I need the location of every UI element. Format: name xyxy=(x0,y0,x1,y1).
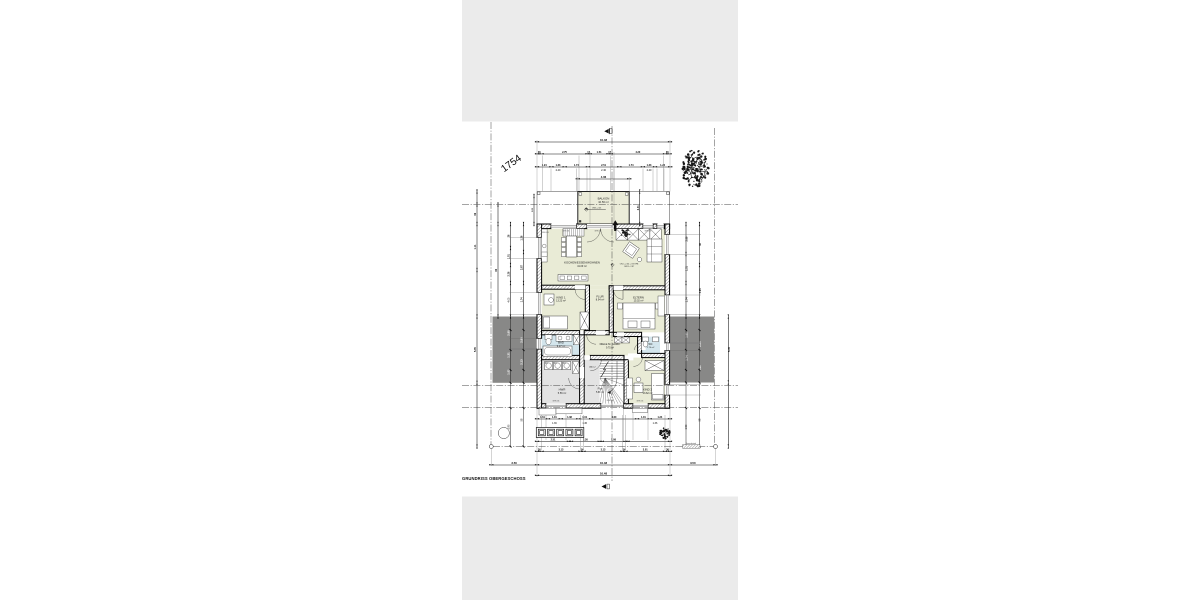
svg-text:BRH 0.86: BRH 0.86 xyxy=(637,401,644,403)
svg-text:15.02 m²: 15.02 m² xyxy=(634,300,644,303)
svg-text:3.01: 3.01 xyxy=(643,449,648,452)
svg-text:8.94 m²: 8.94 m² xyxy=(596,299,605,302)
svg-text:1.24: 1.24 xyxy=(660,164,665,167)
svg-text:5.35: 5.35 xyxy=(728,346,731,351)
svg-text:1.51: 1.51 xyxy=(597,151,602,154)
svg-text:1.01: 1.01 xyxy=(552,416,557,419)
svg-text:1.70 m²: 1.70 m² xyxy=(647,346,655,349)
svg-text:Abst.2: Abst.2 xyxy=(589,366,596,369)
svg-text:1.74: 1.74 xyxy=(574,164,579,167)
svg-text:OKB +2.46: OKB +2.46 xyxy=(592,207,601,209)
svg-text:BRH 0.86: BRH 0.86 xyxy=(607,400,614,402)
svg-text:1.11: 1.11 xyxy=(474,244,477,249)
svg-text:BRH 0.86: BRH 0.86 xyxy=(563,231,570,233)
svg-text:2.40: 2.40 xyxy=(601,169,606,172)
svg-text:1.33: 1.33 xyxy=(647,164,652,167)
svg-text:BRH 0.86: BRH 0.86 xyxy=(553,401,560,403)
svg-text:1.36: 1.36 xyxy=(582,422,587,425)
svg-text:2.36: 2.36 xyxy=(508,271,511,276)
svg-text:2.26: 2.26 xyxy=(583,439,588,442)
svg-text:1.74: 1.74 xyxy=(629,164,634,167)
svg-text:5.35: 5.35 xyxy=(474,347,477,352)
svg-text:2.40: 2.40 xyxy=(647,169,652,172)
svg-text:BRH 0.86: BRH 0.86 xyxy=(542,232,549,234)
svg-text:5.56 m²: 5.56 m² xyxy=(558,392,567,395)
svg-text:1.90: 1.90 xyxy=(508,424,511,429)
svg-text:1.61: 1.61 xyxy=(685,332,689,338)
svg-text:9.75 m²: 9.75 m² xyxy=(606,346,614,349)
svg-text:10.56 m²: 10.56 m² xyxy=(598,200,609,204)
svg-text:2.13: 2.13 xyxy=(520,359,524,365)
svg-text:2.51: 2.51 xyxy=(551,439,556,442)
svg-text:4.20: 4.20 xyxy=(635,151,640,154)
svg-text:2.40: 2.40 xyxy=(556,169,561,172)
svg-text:13.23 m²: 13.23 m² xyxy=(556,300,566,303)
svg-text:1.24: 1.24 xyxy=(657,416,662,419)
svg-text:1.36: 1.36 xyxy=(552,422,557,425)
svg-text:1.31: 1.31 xyxy=(686,265,689,270)
svg-text:41.09 m²: 41.09 m² xyxy=(577,265,587,268)
svg-text:3.13: 3.13 xyxy=(559,449,564,452)
svg-text:3.50: 3.50 xyxy=(511,461,517,465)
svg-text:10.48: 10.48 xyxy=(600,472,607,476)
svg-text:1.74: 1.74 xyxy=(686,297,689,302)
svg-text:1.74: 1.74 xyxy=(685,355,689,361)
svg-text:KOCHEN/ESSEN/WOHNEN: KOCHEN/ESSEN/WOHNEN xyxy=(564,261,600,265)
svg-text:OKU +2.60 = OK RFB: OKU +2.60 = OK RFB xyxy=(620,263,639,265)
svg-text:10.48: 10.48 xyxy=(600,138,607,142)
svg-text:2.75: 2.75 xyxy=(562,151,567,154)
svg-text:2.60: 2.60 xyxy=(686,236,689,241)
svg-text:3.13: 3.13 xyxy=(601,449,606,452)
svg-text:3.50: 3.50 xyxy=(690,461,696,465)
svg-text:WC: WC xyxy=(649,343,653,346)
svg-text:4.05: 4.05 xyxy=(699,288,702,293)
svg-text:2.31: 2.31 xyxy=(637,205,640,210)
svg-text:1.01: 1.01 xyxy=(582,416,587,419)
svg-text:2.87: 2.87 xyxy=(521,264,524,269)
svg-text:BRH 0.86: BRH 0.86 xyxy=(645,231,652,233)
svg-text:1.01: 1.01 xyxy=(698,365,702,371)
svg-text:4.05: 4.05 xyxy=(508,297,511,302)
svg-text:1.90: 1.90 xyxy=(685,424,688,429)
svg-text:5.61 m²: 5.61 m² xyxy=(596,391,604,394)
svg-text:2.51: 2.51 xyxy=(601,164,606,167)
svg-text:2.60: 2.60 xyxy=(520,337,524,343)
svg-text:BRH 0.86: BRH 0.86 xyxy=(595,231,602,233)
svg-text:1.38: 1.38 xyxy=(567,416,572,419)
svg-text:4.06: 4.06 xyxy=(601,175,607,179)
svg-text:13.62 m²: 13.62 m² xyxy=(643,392,653,395)
svg-text:1.31: 1.31 xyxy=(507,352,511,358)
svg-text:2.60: 2.60 xyxy=(698,341,702,347)
svg-text:1.33: 1.33 xyxy=(556,164,561,167)
svg-text:10.48: 10.48 xyxy=(600,461,607,465)
svg-text:GRUNDRISS OBERGESCHOSS: GRUNDRISS OBERGESCHOSS xyxy=(462,476,526,481)
svg-text:1.01: 1.01 xyxy=(641,416,646,419)
svg-text:2.60: 2.60 xyxy=(507,330,511,336)
svg-text:3.60: 3.60 xyxy=(612,416,617,419)
svg-text:1.36: 1.36 xyxy=(653,422,658,425)
svg-text:1.74: 1.74 xyxy=(521,297,524,302)
svg-text:1.36: 1.36 xyxy=(521,235,524,240)
svg-text:OKFF +2.87: OKFF +2.87 xyxy=(624,266,634,268)
svg-text:9.17 m²: 9.17 m² xyxy=(557,345,566,348)
svg-text:1.51: 1.51 xyxy=(508,253,511,258)
svg-text:1.61: 1.61 xyxy=(540,416,545,419)
